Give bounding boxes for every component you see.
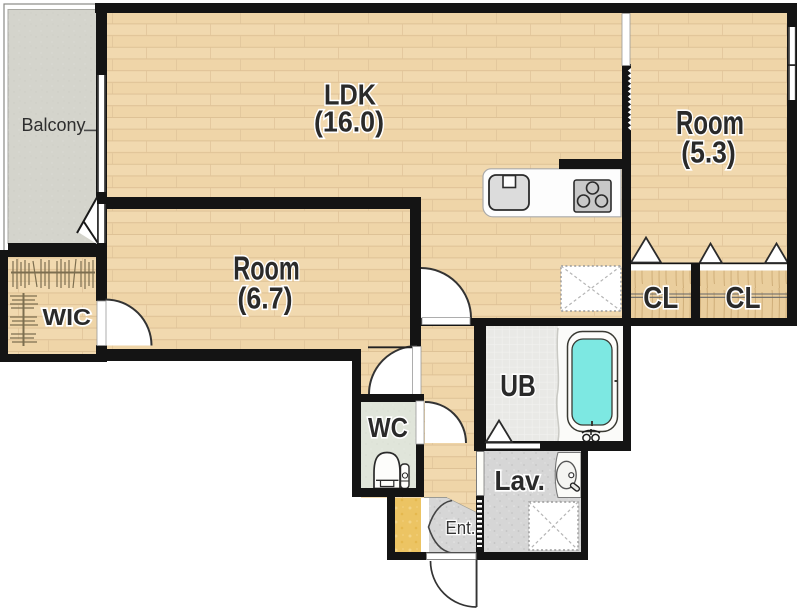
svg-text:CL: CL [643, 280, 678, 315]
svg-text:(16.0): (16.0) [314, 107, 384, 139]
svg-text:UB: UB [500, 368, 536, 403]
svg-text:Lav.: Lav. [494, 465, 545, 496]
svg-text:WC: WC [368, 412, 408, 443]
svg-text:(5.3): (5.3) [681, 135, 736, 170]
svg-text:(6.7): (6.7) [238, 281, 293, 316]
svg-text:Balcony: Balcony [22, 115, 86, 135]
svg-text:CL: CL [726, 280, 761, 315]
svg-text:Ent.: Ent. [446, 518, 476, 538]
svg-text:WIC: WIC [43, 304, 92, 330]
